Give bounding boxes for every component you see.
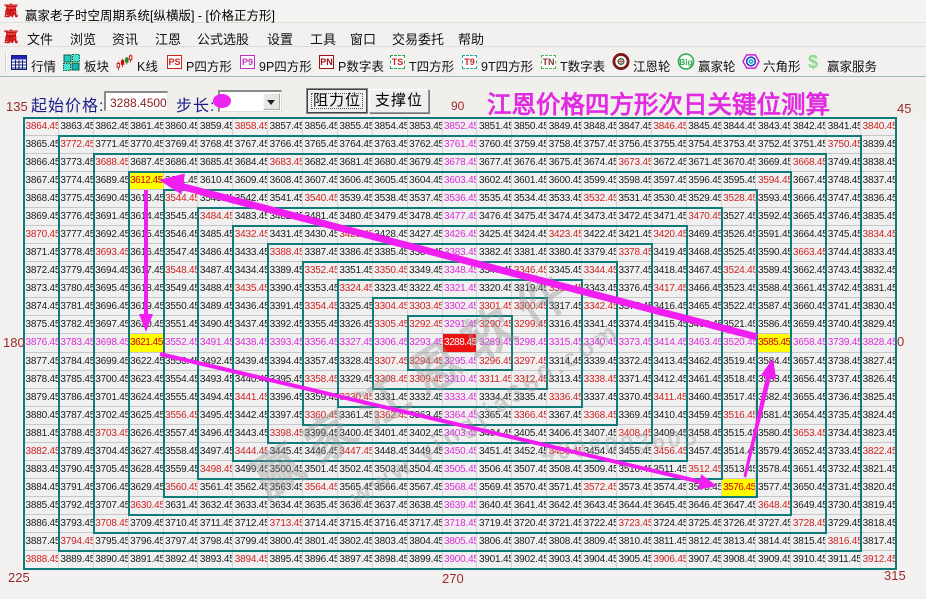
svg-text:Big: Big [679, 57, 693, 67]
